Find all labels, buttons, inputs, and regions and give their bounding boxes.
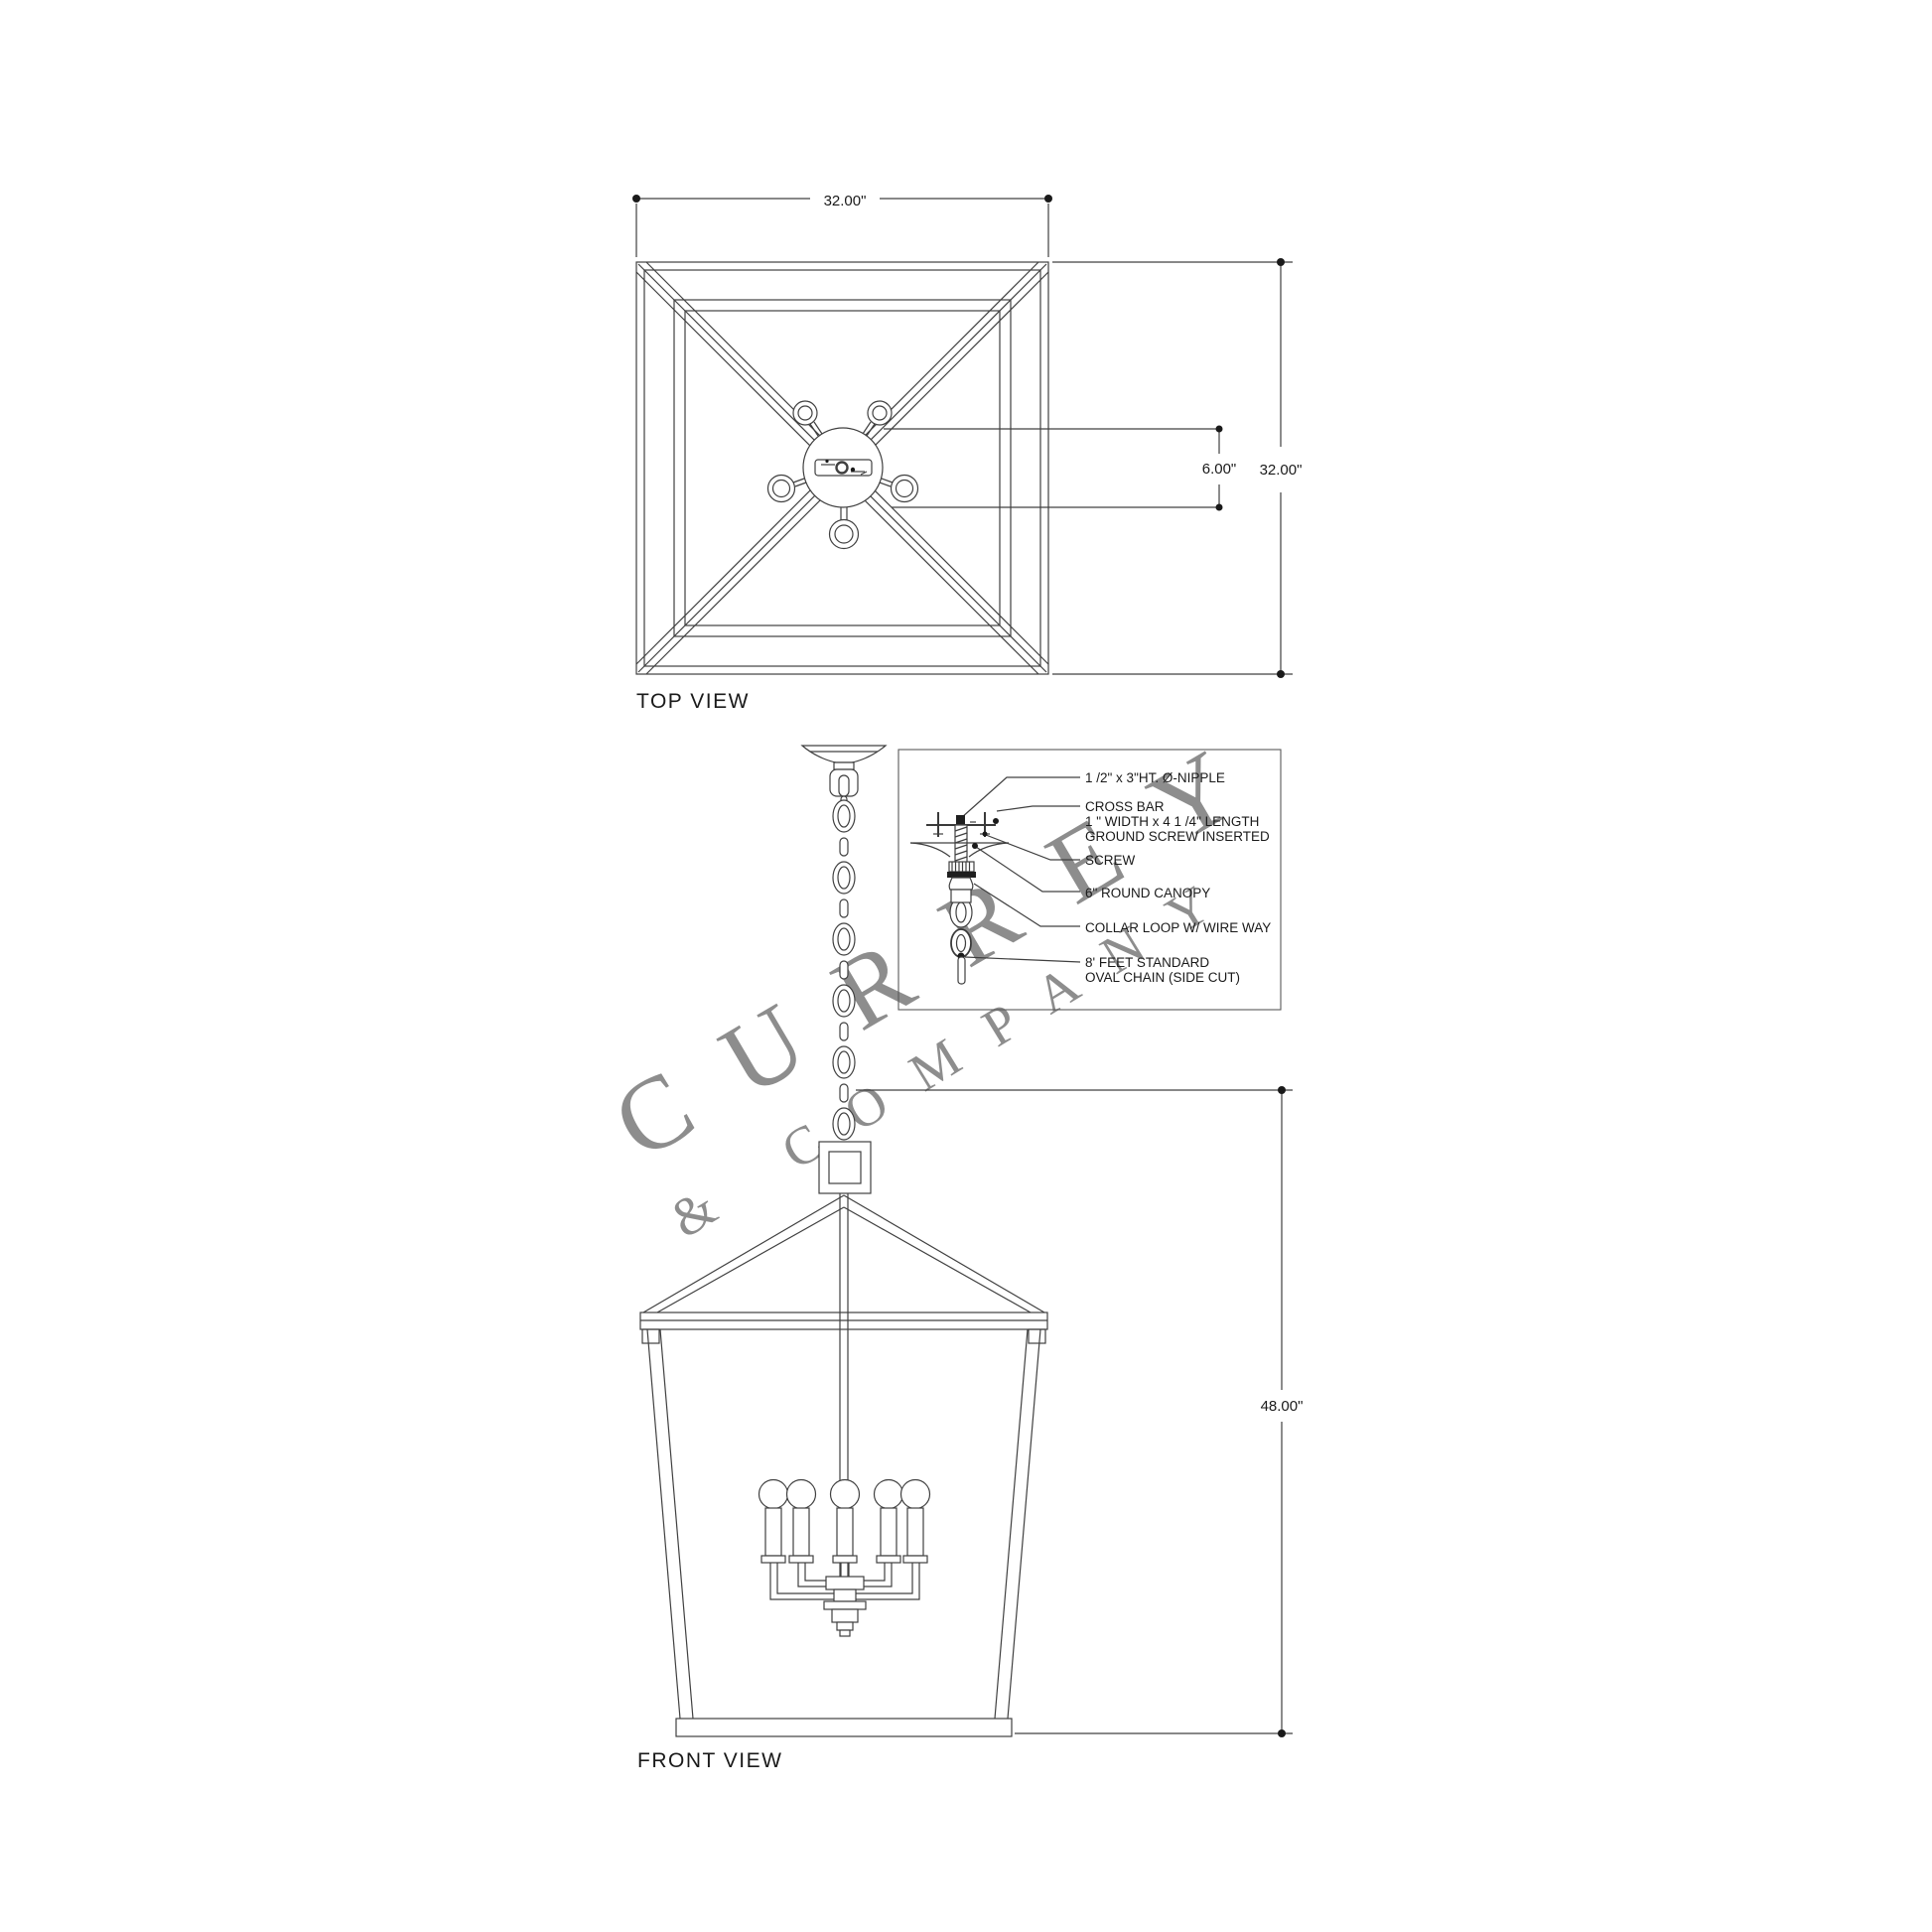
label-chain-2: OVAL CHAIN (SIDE CUT) — [1085, 970, 1240, 985]
top-view-label: TOP VIEW — [636, 690, 750, 713]
label-crossbar-size: 1 " WIDTH x 4 1 /4" LENGTH — [1085, 814, 1259, 829]
canopy-dimension: 6.00" — [884, 426, 1236, 511]
label-screw: SCREW — [1085, 853, 1136, 868]
label-nipple: 1 /2" x 3"HT. Ø-NIPPLE — [1085, 770, 1225, 785]
label-round-canopy: 6" ROUND CANOPY — [1085, 886, 1210, 900]
dim-top-height: 32.00" — [1260, 462, 1303, 479]
top-width-dimension: 32.00" — [632, 193, 1052, 257]
top-view: 32.00" 32.00" 6.00" — [632, 193, 1302, 713]
top-height-dimension: 32.00" — [1052, 258, 1302, 678]
bulbs — [759, 1480, 930, 1509]
dim-canopy: 6.00" — [1202, 461, 1237, 478]
label-ground-screw: GROUND SCREW INSERTED — [1085, 829, 1270, 844]
label-collar-loop: COLLAR LOOP W/ WIRE WAY — [1085, 920, 1271, 935]
label-crossbar: CROSS BAR — [1085, 799, 1165, 814]
suspension-block — [819, 1142, 871, 1193]
front-canopy — [802, 746, 886, 796]
front-view-label: FRONT VIEW — [637, 1749, 782, 1772]
crossbar-detail — [815, 460, 872, 476]
label-chain-1: 8' FEET STANDARD — [1085, 955, 1209, 970]
dim-front-height: 48.00" — [1261, 1398, 1304, 1415]
candle-cluster — [759, 1480, 930, 1637]
front-height-dimension: 48.00" — [856, 1086, 1303, 1737]
lighting-spec-drawing: CURREY & COMPANY 32.00" 32.00" — [0, 0, 1932, 1932]
dim-top-width: 32.00" — [824, 193, 867, 209]
center-hub — [824, 1577, 866, 1636]
candle-sleeves — [761, 1508, 927, 1563]
